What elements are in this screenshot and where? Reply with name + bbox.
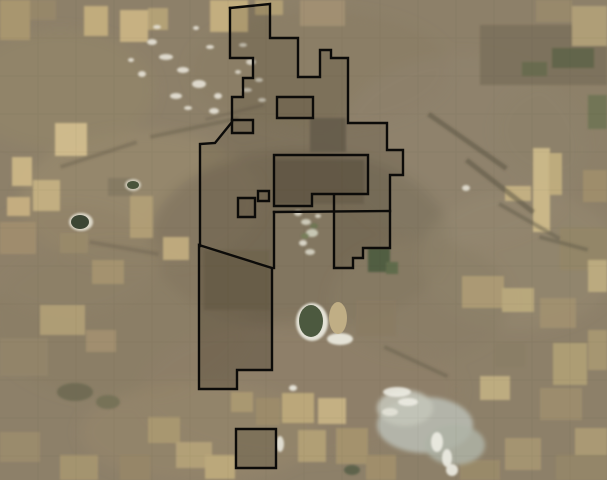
parcel-boundary-south-detached-parcel[interactable] xyxy=(236,429,276,468)
parcel-boundary-small-center-parcel-a[interactable] xyxy=(238,198,255,217)
parcel-boundary-lower-left-parcel[interactable] xyxy=(199,245,272,389)
parcel-boundary-south-parcel-top-line[interactable] xyxy=(274,211,390,212)
satellite-map[interactable] xyxy=(0,0,607,480)
terrain-imagery xyxy=(0,0,607,480)
satellite-map-canvas[interactable] xyxy=(0,0,607,480)
parcel-boundary-small-center-parcel-b[interactable] xyxy=(258,191,269,201)
parcel-boundary-upper-middle-parcel[interactable] xyxy=(277,97,313,118)
parcel-boundary-small-north-parcel[interactable] xyxy=(232,120,253,133)
